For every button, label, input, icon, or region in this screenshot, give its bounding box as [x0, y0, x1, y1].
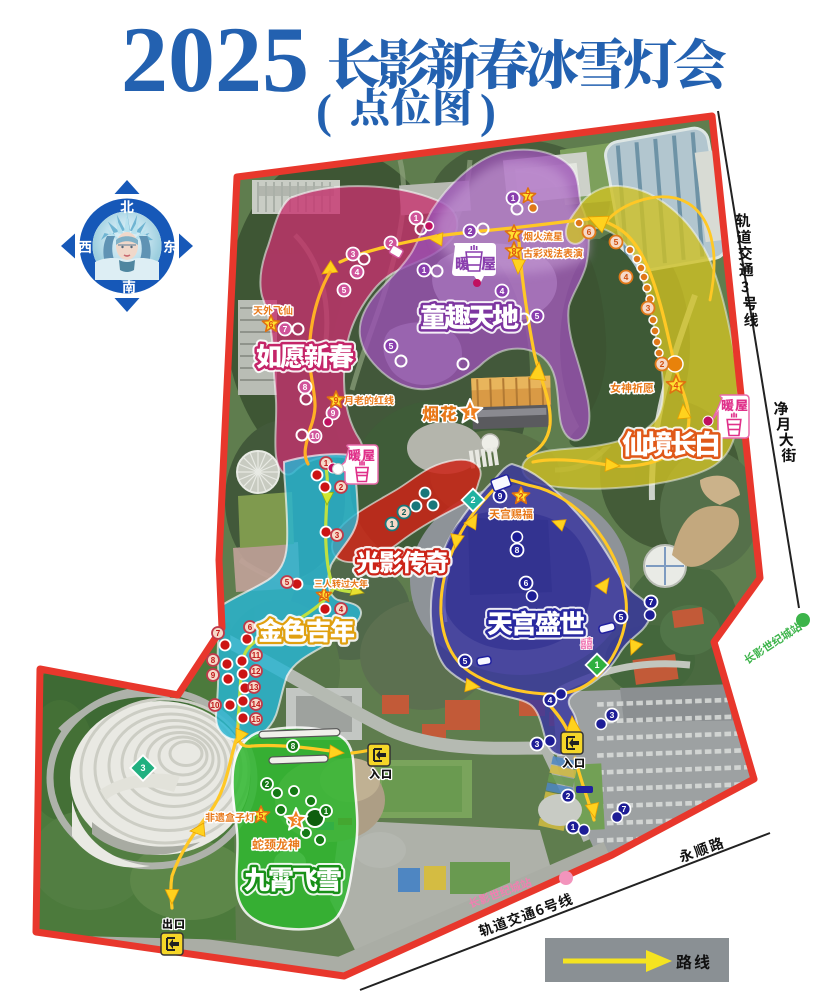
svg-text:4: 4 [673, 380, 678, 390]
svg-text:4: 4 [339, 605, 344, 614]
svg-text:1: 1 [324, 807, 329, 816]
svg-text:3: 3 [646, 303, 651, 313]
svg-text:10: 10 [310, 431, 320, 441]
svg-text:5: 5 [463, 656, 468, 666]
svg-text:2: 2 [566, 791, 571, 801]
svg-text:9: 9 [333, 395, 338, 405]
svg-text:11: 11 [252, 651, 261, 660]
svg-text:9: 9 [331, 408, 336, 418]
svg-text:2: 2 [339, 483, 344, 492]
svg-text:6: 6 [587, 227, 592, 237]
svg-text:5: 5 [619, 612, 624, 622]
svg-text:3: 3 [293, 815, 299, 827]
svg-text:9: 9 [498, 491, 503, 501]
svg-text:1: 1 [422, 265, 427, 275]
svg-text:9: 9 [211, 671, 216, 680]
svg-text:1: 1 [511, 193, 516, 203]
svg-text:5: 5 [535, 311, 540, 321]
svg-text:7: 7 [622, 804, 627, 814]
svg-text:12: 12 [252, 667, 261, 676]
svg-text:7: 7 [525, 191, 530, 201]
svg-text:2: 2 [470, 495, 475, 505]
svg-text:1: 1 [390, 519, 395, 529]
svg-text:4: 4 [355, 267, 360, 277]
svg-text:15: 15 [252, 715, 261, 724]
svg-text:3: 3 [140, 763, 145, 773]
svg-text:1: 1 [571, 822, 576, 832]
svg-text:3: 3 [335, 531, 340, 540]
svg-text:5: 5 [614, 237, 619, 247]
svg-text:6: 6 [268, 319, 273, 329]
svg-text:2: 2 [265, 780, 270, 789]
svg-text:3: 3 [351, 249, 356, 259]
svg-text:10: 10 [211, 701, 220, 710]
svg-text:8: 8 [511, 246, 516, 256]
svg-text:13: 13 [250, 683, 259, 692]
svg-text:3: 3 [535, 739, 540, 749]
svg-text:4: 4 [500, 286, 505, 296]
svg-text:7: 7 [216, 629, 221, 638]
svg-text:2: 2 [402, 507, 407, 517]
svg-text:1: 1 [466, 405, 473, 420]
svg-text:4: 4 [548, 695, 553, 705]
svg-text:14: 14 [252, 700, 261, 709]
svg-text:2: 2 [660, 359, 665, 369]
svg-text:5: 5 [342, 285, 347, 295]
svg-text:5: 5 [285, 578, 290, 587]
svg-text:1: 1 [414, 213, 419, 223]
svg-text:1: 1 [594, 660, 599, 670]
svg-text:6: 6 [524, 578, 529, 588]
svg-text:7: 7 [511, 229, 516, 239]
svg-text:3: 3 [610, 710, 615, 720]
svg-text:8: 8 [303, 382, 308, 392]
svg-text:8: 8 [291, 742, 296, 751]
svg-text:10: 10 [320, 591, 329, 600]
svg-text:7: 7 [283, 324, 288, 334]
svg-text:8: 8 [211, 656, 216, 665]
svg-text:2: 2 [468, 226, 473, 236]
svg-text:8: 8 [515, 545, 520, 555]
svg-text:5: 5 [389, 341, 394, 351]
svg-text:5: 5 [258, 810, 263, 820]
svg-text:7: 7 [649, 597, 654, 607]
svg-text:6: 6 [248, 623, 253, 632]
svg-text:2: 2 [518, 491, 523, 501]
svg-text:4: 4 [624, 272, 629, 282]
